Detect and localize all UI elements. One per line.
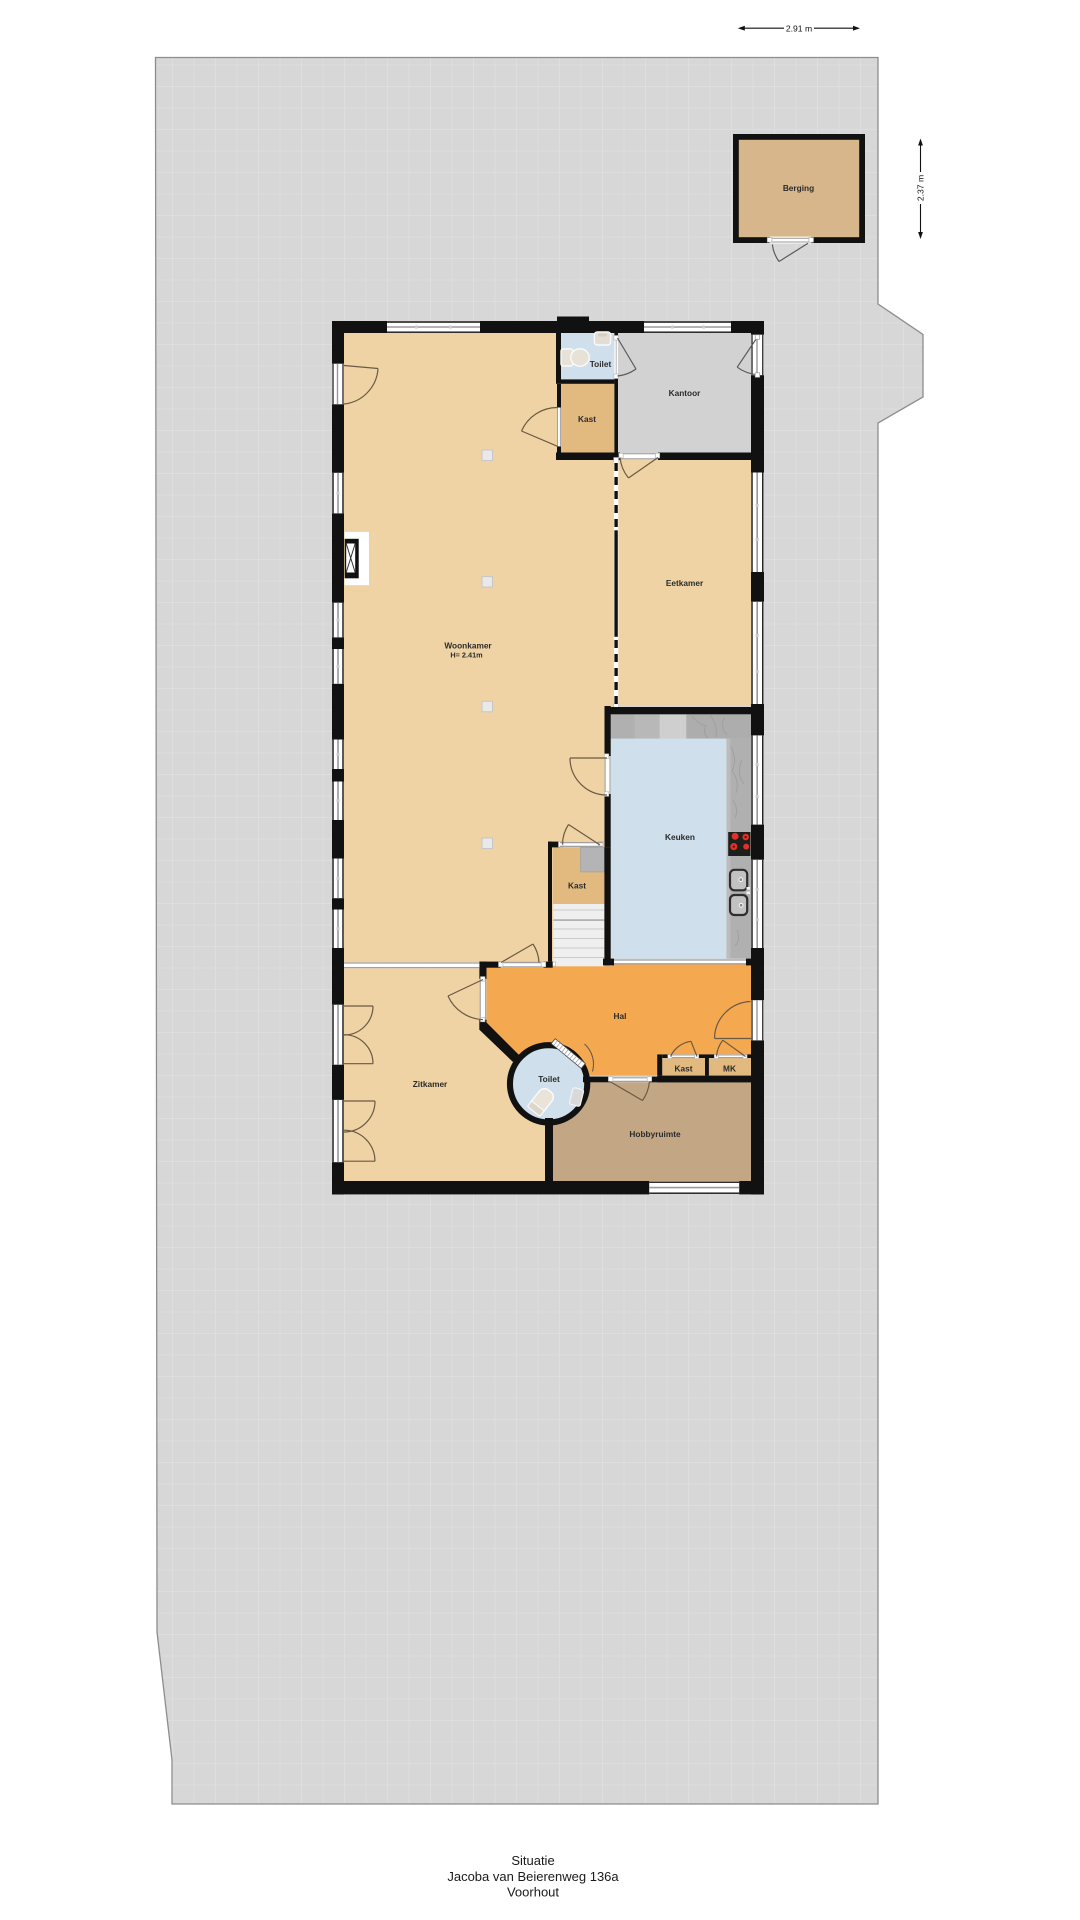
svg-text:Kast: Kast: [578, 414, 596, 424]
svg-text:H= 2.41m: H= 2.41m: [450, 651, 483, 660]
svg-text:Toilet: Toilet: [538, 1074, 560, 1084]
svg-text:Situatie: Situatie: [511, 1853, 554, 1868]
svg-text:2.91 m: 2.91 m: [786, 23, 812, 33]
svg-text:Hal: Hal: [614, 1011, 627, 1021]
svg-text:Woonkamer: Woonkamer: [444, 641, 492, 651]
svg-text:MK: MK: [723, 1064, 736, 1074]
svg-text:Toilet: Toilet: [590, 359, 612, 369]
svg-text:Zitkamer: Zitkamer: [413, 1079, 448, 1089]
svg-text:Kast: Kast: [675, 1064, 693, 1074]
svg-text:Kast: Kast: [568, 881, 586, 891]
svg-text:Eetkamer: Eetkamer: [666, 578, 704, 588]
svg-text:2.37 m: 2.37 m: [916, 175, 926, 201]
svg-text:Kantoor: Kantoor: [669, 388, 702, 398]
svg-text:Hobbyruimte: Hobbyruimte: [629, 1129, 681, 1139]
svg-text:Jacoba van Beierenweg 136a: Jacoba van Beierenweg 136a: [447, 1869, 619, 1884]
svg-text:Keuken: Keuken: [665, 832, 695, 842]
svg-text:Berging: Berging: [783, 183, 814, 193]
svg-text:Voorhout: Voorhout: [507, 1885, 559, 1900]
